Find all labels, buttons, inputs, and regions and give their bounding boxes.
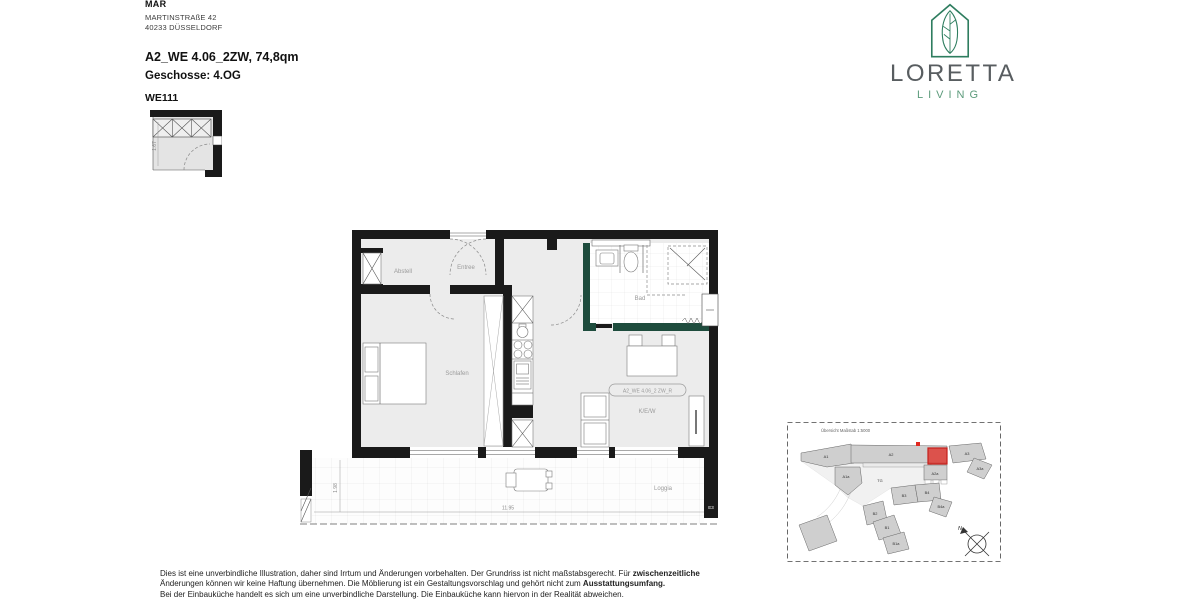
svg-text:B3: B3 bbox=[902, 493, 907, 498]
section-marker: E3 bbox=[708, 505, 714, 510]
highlight-dot bbox=[916, 442, 920, 446]
toilet bbox=[624, 252, 638, 272]
abstell-closet bbox=[361, 248, 383, 289]
unit-title: A2_WE 4.06_2ZW, 74,8qm bbox=[145, 50, 299, 64]
svg-text:B4a: B4a bbox=[938, 504, 946, 509]
unit-code: WE111 bbox=[145, 92, 178, 104]
label-entree: Entree bbox=[457, 265, 475, 271]
address-street: MARTINSTRAßE 42 bbox=[145, 13, 217, 22]
sideboard bbox=[581, 393, 609, 447]
wardrobe bbox=[484, 296, 503, 446]
floor-label: Geschosse: 4.OG bbox=[145, 70, 241, 82]
svg-text:A3: A3 bbox=[965, 451, 970, 456]
label-loggia: Loggia bbox=[654, 486, 673, 492]
pillow bbox=[365, 376, 378, 401]
site-plan-title: Übersicht Maßstab 1:5000 bbox=[821, 428, 871, 433]
disclaimer-line-3: Bei der Einbauküche handelt es sich um e… bbox=[160, 590, 780, 600]
site-plan: Übersicht Maßstab 1:5000 A1 A2 A3 A3a A1… bbox=[787, 422, 1001, 562]
main-floor-plan: A2_WE 4.06_2 ZW_R Abstell Entree Bad Sch… bbox=[300, 228, 720, 533]
thumb-closet-row bbox=[153, 119, 211, 137]
bath-door-leaf bbox=[596, 324, 612, 328]
kitchen bbox=[512, 296, 533, 447]
svg-text:A2: A2 bbox=[889, 452, 894, 457]
thumb-wall-top bbox=[150, 110, 222, 117]
brand-name: LORETTA bbox=[890, 60, 1010, 88]
thumb-dimension: 1.67 bbox=[152, 141, 158, 151]
svg-text:B4: B4 bbox=[925, 490, 931, 495]
label-abstell: Abstell bbox=[394, 269, 412, 275]
brand-subline: LIVING bbox=[890, 89, 1010, 101]
brand-logo: LORETTA LIVING bbox=[890, 0, 1010, 101]
highlighted-unit bbox=[928, 448, 947, 464]
svg-text:A3a: A3a bbox=[977, 466, 985, 471]
label-bad: Bad bbox=[635, 296, 646, 302]
chair bbox=[629, 335, 642, 346]
kitchen-sink bbox=[517, 327, 528, 338]
svg-text:A2a: A2a bbox=[932, 471, 940, 476]
company-name: MAR bbox=[145, 0, 166, 9]
thumb-shaft bbox=[213, 136, 222, 145]
svg-text:B1: B1 bbox=[885, 525, 890, 530]
label-schlafen: Schlafen bbox=[445, 371, 468, 377]
toilet-tank bbox=[624, 245, 638, 251]
disclaimer: Dies ist eine unverbindliche Illustratio… bbox=[160, 569, 780, 600]
compass-north-label: N bbox=[958, 526, 962, 532]
oven bbox=[514, 361, 531, 389]
svg-text:11.95: 11.95 bbox=[502, 506, 514, 512]
tall-cabinet bbox=[689, 396, 704, 446]
thumb-wall-stub bbox=[205, 170, 222, 177]
floorplan-page: { "header": { "company": "MAR", "address… bbox=[0, 0, 1200, 600]
disclaimer-line-1: Dies ist eine unverbindliche Illustratio… bbox=[160, 569, 780, 579]
svg-text:A2_WE 4.06_2 ZW_R: A2_WE 4.06_2 ZW_R bbox=[623, 389, 673, 395]
pillow bbox=[365, 347, 378, 372]
disclaimer-line-2: Änderungen können wir keine Haftung über… bbox=[160, 579, 780, 589]
address-city: 40233 DÜSSELDORF bbox=[145, 23, 222, 32]
house-leaf-icon bbox=[923, 0, 977, 58]
svg-text:B1a: B1a bbox=[893, 541, 901, 546]
dining-table bbox=[627, 346, 677, 376]
svg-text:TG: TG bbox=[877, 478, 882, 483]
unit-thumbnail-plan: 1.67 bbox=[150, 110, 222, 177]
svg-text:1.98: 1.98 bbox=[333, 483, 339, 493]
svg-text:A1: A1 bbox=[824, 454, 829, 459]
svg-text:A1a: A1a bbox=[843, 474, 851, 479]
svg-text:B2: B2 bbox=[873, 511, 878, 516]
bed bbox=[363, 343, 426, 404]
chair bbox=[662, 335, 675, 346]
label-kew: K/E/W bbox=[638, 409, 655, 415]
